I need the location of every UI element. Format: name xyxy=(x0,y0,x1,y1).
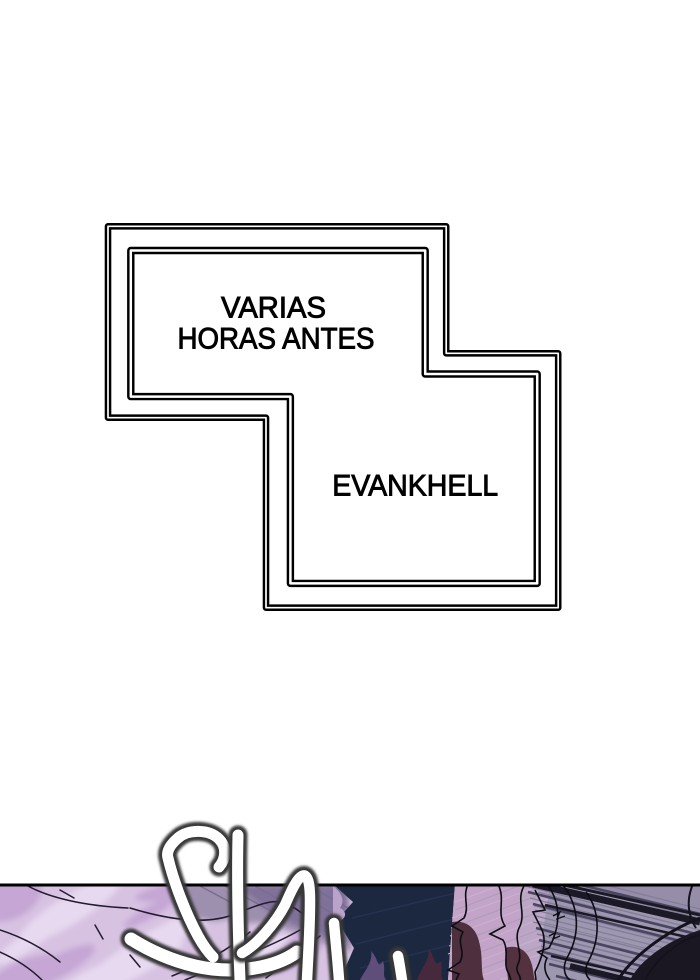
svg-text:HORAS ANTES: HORAS ANTES xyxy=(178,323,375,356)
svg-text:VARIAS: VARIAS xyxy=(221,292,326,325)
svg-text:EVANKHELL: EVANKHELL xyxy=(332,470,498,503)
